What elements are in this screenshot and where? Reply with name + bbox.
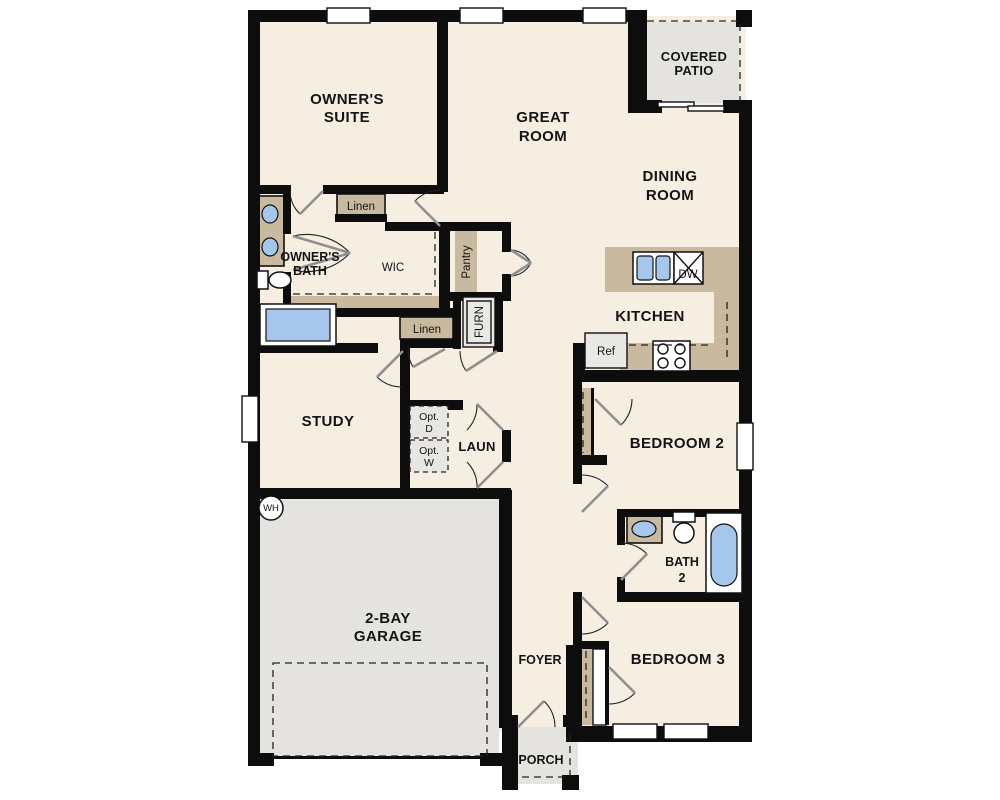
label-foyer: FOYER: [518, 653, 561, 667]
label-owners-suite-1: OWNER'S: [310, 91, 384, 108]
label-owners-suite-2: SUITE: [324, 109, 370, 126]
label-covered-patio-2: PATIO: [674, 63, 713, 78]
label-dining-room-2: ROOM: [646, 187, 694, 204]
kitchen-sink-basin-2: [656, 256, 670, 280]
label-dishwasher: DW: [678, 269, 697, 281]
floor-plan-page: OWNER'S SUITE GREAT ROOM COVERED PATIO D…: [0, 0, 1000, 800]
bedroom2-closet-wall: [591, 388, 594, 455]
label-bedroom3: BEDROOM 3: [631, 651, 725, 668]
window-bedroom2: [737, 423, 753, 470]
label-water-heater: WH: [263, 503, 279, 514]
owners-bath-toilet-tank: [257, 271, 268, 289]
patio-slider-panel-2: [688, 106, 724, 111]
bath2-toilet-bowl: [674, 523, 694, 543]
label-owners-bath-2: BATH: [293, 264, 327, 278]
owners-bath-toilet-bowl: [269, 272, 291, 288]
label-bath2-1: BATH: [665, 555, 699, 569]
window-great-room-2: [583, 8, 626, 23]
label-opt-dryer-1: Opt.: [419, 411, 439, 423]
label-porch: PORCH: [518, 753, 563, 767]
label-great-room-1: GREAT: [516, 109, 569, 126]
window-bedroom3-1: [613, 724, 657, 739]
label-opt-dryer-2: D: [425, 423, 433, 435]
label-dining-room-1: DINING: [643, 168, 698, 185]
label-garage-2: GARAGE: [354, 628, 422, 645]
label-refrigerator: Ref: [597, 346, 616, 358]
label-opt-washer-2: W: [424, 457, 434, 469]
label-bath2-2: 2: [679, 571, 686, 585]
label-wic: WIC: [382, 262, 404, 274]
label-study: STUDY: [302, 413, 355, 430]
label-bedroom2: BEDROOM 2: [630, 435, 724, 452]
window-study: [242, 396, 258, 442]
bath2-toilet-tank: [673, 512, 695, 522]
label-owners-bath-1: OWNER'S: [280, 250, 339, 264]
window-great-room-1: [460, 8, 503, 23]
label-great-room-2: ROOM: [519, 128, 567, 145]
bath2-sink: [632, 521, 656, 537]
label-furnace: FURN: [474, 306, 486, 338]
bath2-tub: [711, 524, 737, 586]
kitchen-sink-basin-1: [637, 256, 653, 280]
label-covered-patio-1: COVERED: [661, 49, 727, 64]
window-bedroom3-2: [664, 724, 708, 739]
window-owners-suite: [327, 8, 370, 23]
label-kitchen: KITCHEN: [615, 308, 684, 325]
bedroom3-closet-floor: [593, 649, 606, 725]
label-opt-washer-1: Opt.: [419, 445, 439, 457]
owners-bath-sink-1: [262, 205, 278, 223]
label-laundry: LAUN: [458, 439, 495, 454]
label-pantry: Pantry: [461, 245, 473, 278]
label-linen-upper: Linen: [347, 201, 375, 213]
owners-bath-shower: [266, 309, 330, 341]
label-garage-1: 2-BAY: [365, 610, 411, 627]
owners-bath-sink-2: [262, 238, 278, 256]
floor-plan: OWNER'S SUITE GREAT ROOM COVERED PATIO D…: [0, 0, 1000, 800]
label-linen-lower: Linen: [413, 324, 441, 336]
